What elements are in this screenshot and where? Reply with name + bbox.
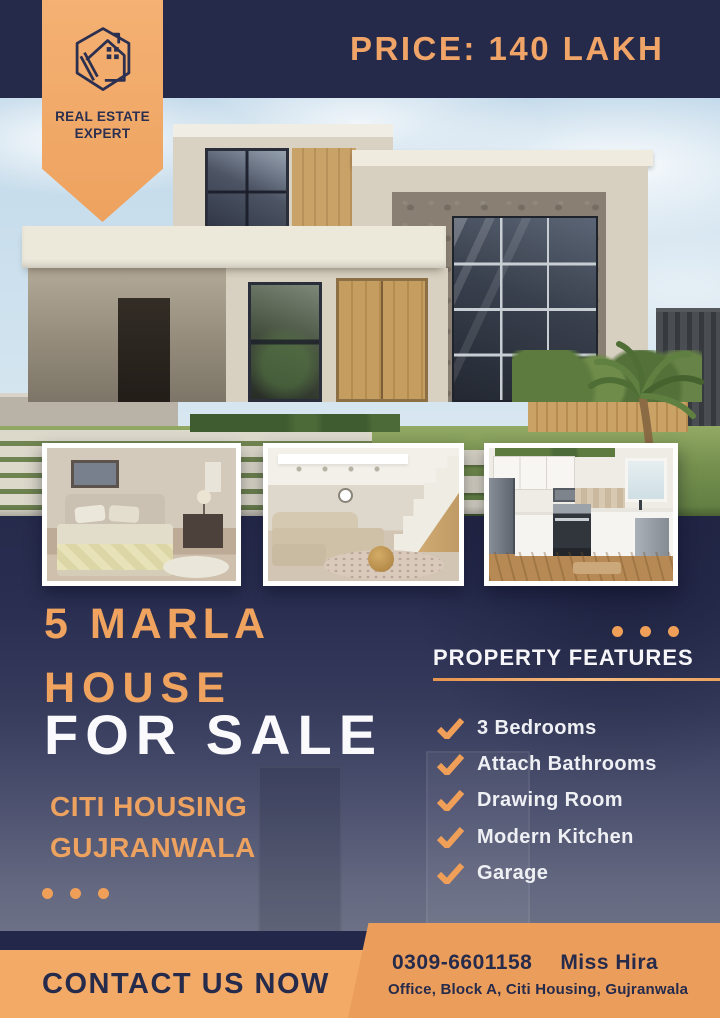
location-line2: GUJRANWALA <box>50 827 256 868</box>
dresser <box>183 514 223 548</box>
feature-label: Garage <box>477 862 548 885</box>
features-list: 3 Bedrooms Attach Bathrooms Drawing Room… <box>437 710 657 892</box>
bed-throw-blanket <box>57 544 173 570</box>
contact-cta-text: CONTACT US NOW <box>42 950 330 1018</box>
agent-name: Miss Hira <box>560 951 658 975</box>
wood-entry-door <box>336 278 428 402</box>
badge-title-line2: EXPERT <box>75 125 131 142</box>
garage-door <box>118 298 170 402</box>
feature-label: Drawing Room <box>477 789 623 812</box>
price-text: PRICE: 140 LAKH <box>350 0 710 98</box>
left-counter <box>515 512 553 556</box>
shrub-row <box>190 414 400 432</box>
headline-for-sale: FOR SALE <box>44 702 383 767</box>
headline-size: 5 MARLA <box>44 600 270 649</box>
roof-fascia <box>352 150 653 166</box>
kitchen-photo-content <box>489 448 673 581</box>
bedroom-rug <box>163 556 229 578</box>
carport-roof-slab <box>22 226 446 268</box>
dot <box>668 626 679 637</box>
pillow <box>108 505 139 523</box>
features-title: PROPERTY FEATURES <box>433 645 694 671</box>
contact-info-panel: 0309-6601158 Miss Hira Office, Block A, … <box>348 923 720 1018</box>
feature-item: Modern Kitchen <box>437 819 657 855</box>
sofa-chaise <box>272 544 326 566</box>
sink-faucet <box>639 500 642 510</box>
feature-item: Drawing Room <box>437 783 657 819</box>
real-estate-flyer: PRICE: 140 LAKH <box>0 0 720 1018</box>
wall-clock <box>338 488 353 503</box>
feature-item: 3 Bedrooms <box>437 710 657 746</box>
check-icon <box>437 754 464 775</box>
feature-label: Attach Bathrooms <box>477 753 657 776</box>
refrigerator <box>489 478 515 554</box>
ceiling-spotlights <box>286 466 390 472</box>
dot <box>42 888 53 899</box>
check-icon <box>437 863 464 884</box>
dot <box>70 888 81 899</box>
check-icon <box>437 827 464 848</box>
ground-floor-window <box>248 282 322 402</box>
kitchen-photo <box>484 443 678 586</box>
upper-wood-panel <box>292 148 356 236</box>
check-icon <box>437 790 464 811</box>
oven-handle <box>555 518 589 521</box>
kitchen-window <box>625 458 667 502</box>
dots-decoration-bottom <box>42 888 109 899</box>
wall-art <box>71 460 119 488</box>
bedroom-photo <box>42 443 241 586</box>
office-address: Office, Block A, Citi Housing, Gujranwal… <box>388 981 688 998</box>
dot <box>640 626 651 637</box>
features-underline <box>433 678 720 681</box>
hexagon-house-logo-icon <box>66 22 140 98</box>
bedroom-photo-content <box>47 448 236 581</box>
contact-row: 0309-6601158 Miss Hira <box>392 951 658 975</box>
living-room-photo-content <box>268 448 459 581</box>
dots-decoration-top <box>612 626 679 637</box>
location-line1: CITI HOUSING <box>50 786 256 827</box>
location-text: CITI HOUSING GUJRANWALA <box>50 786 256 868</box>
living-room-photo <box>263 443 464 586</box>
pillow <box>74 504 106 523</box>
feature-label: 3 Bedrooms <box>477 717 597 740</box>
badge-title-line1: REAL ESTATE <box>55 108 150 125</box>
bedside-lamp <box>197 490 211 504</box>
feature-item: Attach Bathrooms <box>437 746 657 782</box>
ceiling-recess <box>278 454 408 464</box>
round-coffee-table <box>368 546 394 572</box>
phone-number: 0309-6601158 <box>392 951 532 975</box>
dot <box>98 888 109 899</box>
check-icon <box>437 718 464 739</box>
dishwasher <box>635 518 669 556</box>
upper-floor-window <box>205 148 289 236</box>
oven-range <box>553 504 591 556</box>
dot <box>612 626 623 637</box>
feature-label: Modern Kitchen <box>477 826 634 849</box>
kitchen-rug <box>573 562 621 574</box>
bedroom-window <box>205 462 221 492</box>
feature-item: Garage <box>437 856 657 892</box>
